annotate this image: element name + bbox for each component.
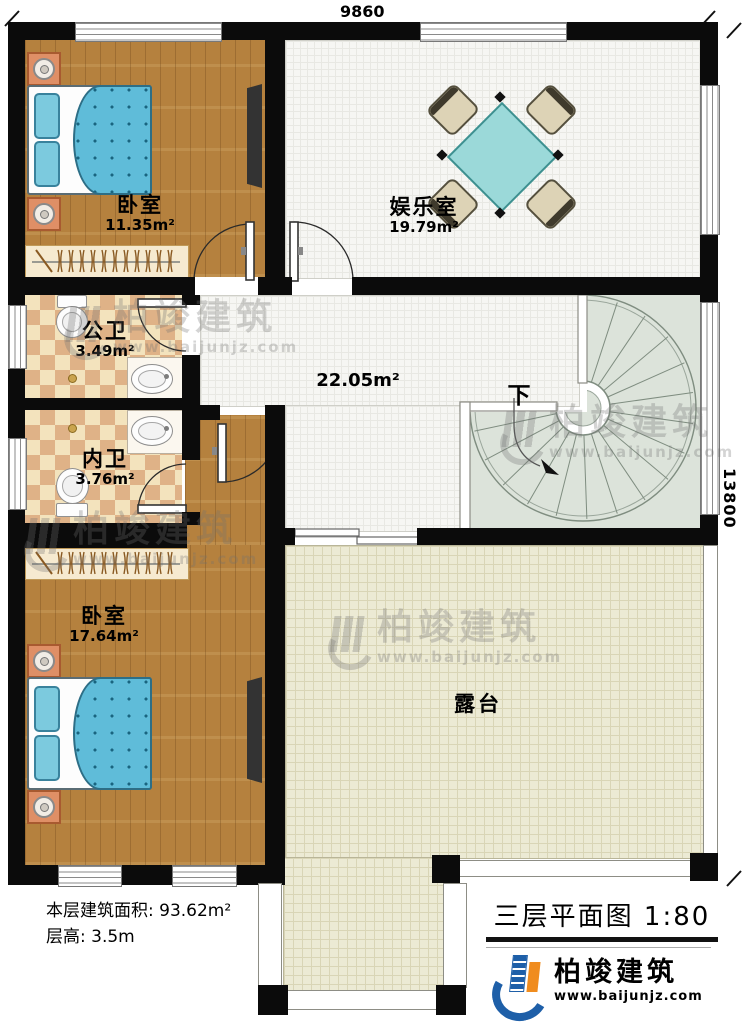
faucet-icon [164,374,169,379]
bedroom-top-label: 卧室 11.35m² [105,194,175,234]
terrace-railing [443,883,467,988]
company-logo: 柏竣建筑 www.baijunjz.com [492,952,703,1010]
lamp-core [40,657,49,666]
window [172,865,237,887]
bed-quilt [73,677,152,790]
bedroom-bottom-label: 卧室 17.64m² [69,605,139,645]
closet-top [25,245,189,279]
room-name: 卧室 [69,605,139,628]
sink-basin-inner [138,422,166,440]
tv-icon [247,84,262,188]
floor-height-text: 层高: 3.5m [46,924,231,950]
interior-wall [417,528,718,545]
terrace-floor-extension [283,857,445,992]
pillar [432,855,460,883]
floor-drain-icon [68,424,77,433]
exterior-wall [565,22,718,40]
watermark-url: www.baijunjz.com [377,648,562,666]
interior-wall [352,277,700,295]
pillar [258,985,288,1015]
window [8,438,27,510]
room-area: 19.79m² [389,219,459,236]
floor-info: 本层建筑面积: 93.62m² 层高: 3.5m [46,898,231,950]
room-name: 卧室 [105,194,175,217]
exterior-wall [220,22,420,40]
bed-pillow [34,686,60,732]
interior-wall [265,40,285,277]
sink-icon [131,364,173,394]
exterior-wall [8,865,58,885]
window [8,305,27,369]
watermark-logo-icon [500,409,540,457]
watermark: 柏竣建筑 www.baijunjz.com [500,405,734,461]
watermark-brand: 柏竣建筑 [377,610,562,646]
interior-wall [8,398,200,410]
bed-quilt [73,85,152,195]
floorplan-canvas: 卧室 11.35m² 娱乐室 19.79m² 公卫 3.49m² 内卫 3.76… [0,0,750,1024]
title-underline [486,937,718,942]
plan-title: 三层平面图 1:80 [486,896,718,933]
pillar [436,985,466,1015]
watermark: 柏竣建筑 www.baijunjz.com [24,512,258,568]
double-bed-top [27,85,152,195]
hallway-floor-lower [285,405,462,532]
interior-wall [200,405,220,420]
company-logo-icon [492,952,548,1010]
floor-drain-icon [68,374,77,383]
lamp-core [40,803,49,812]
room-area: 17.64m² [69,628,139,645]
room-area: 3.76m² [75,471,134,488]
exterior-wall [120,865,172,885]
window [700,85,720,235]
hallway-area-label: 22.05m² [316,370,400,391]
double-bed-bottom [27,677,152,790]
bed-pillow [34,93,60,139]
watermark-logo-icon [328,614,368,662]
lamp-icon [33,650,55,672]
watermark-logo-icon [64,304,104,352]
terrace-railing [703,545,718,862]
lamp-core [40,210,49,219]
lamp-core [40,65,49,74]
bed-pillow [34,141,60,187]
exterior-wall [700,22,718,85]
room-name: 内卫 [75,448,134,471]
tv-icon [247,677,262,783]
watermark: 柏竣建筑 www.baijunjz.com [328,610,562,666]
terrace-railing [286,990,440,1010]
nightstand [27,790,61,824]
watermark: 柏竣建筑 www.baijunjz.com [64,300,298,356]
watermark-url: www.baijunjz.com [113,338,298,356]
interior-wall [285,528,295,545]
exterior-wall [700,233,718,302]
bed-pillow [34,735,60,781]
entertainment-room-label: 娱乐室 19.79m² [389,196,459,236]
watermark-url: www.baijunjz.com [549,443,734,461]
interior-wall [8,277,195,295]
nightstand [27,197,61,231]
window [75,22,222,42]
faucet-icon [164,426,169,431]
watermark-url: www.baijunjz.com [73,550,258,568]
floor-area-text: 本层建筑面积: 93.62m² [46,898,231,924]
pillar [690,853,718,881]
watermark-brand: 柏竣建筑 [73,512,258,548]
watermark-brand: 柏竣建筑 [549,405,734,441]
lamp-icon [33,58,55,80]
window [58,865,122,887]
plan-title-block: 三层平面图 1:80 [486,896,718,948]
terrace-label: 露台 [454,688,502,718]
nightstand [27,52,61,86]
company-website: www.baijunjz.com [554,989,703,1004]
terrace-railing [258,883,282,988]
lamp-icon [33,796,55,818]
room-name: 娱乐室 [389,196,459,219]
watermark-logo-icon [24,516,64,564]
dimension-right: 13800 [720,468,739,529]
nightstand [27,644,61,678]
window [420,22,567,42]
company-name: 柏竣建筑 [554,959,703,986]
exterior-wall [8,22,25,305]
private-bathroom-label: 内卫 3.76m² [75,448,134,488]
watermark-brand: 柏竣建筑 [113,300,298,336]
title-underline-thin [486,947,711,948]
interior-wall [258,277,292,295]
room-area: 11.35m² [105,217,175,234]
lamp-icon [33,203,55,225]
sink-basin-inner [138,370,166,388]
dimension-top: 9860 [340,2,385,21]
terrace-railing [446,860,706,877]
exterior-wall [8,508,25,885]
sink-icon [131,416,173,446]
interior-wall [265,405,285,885]
